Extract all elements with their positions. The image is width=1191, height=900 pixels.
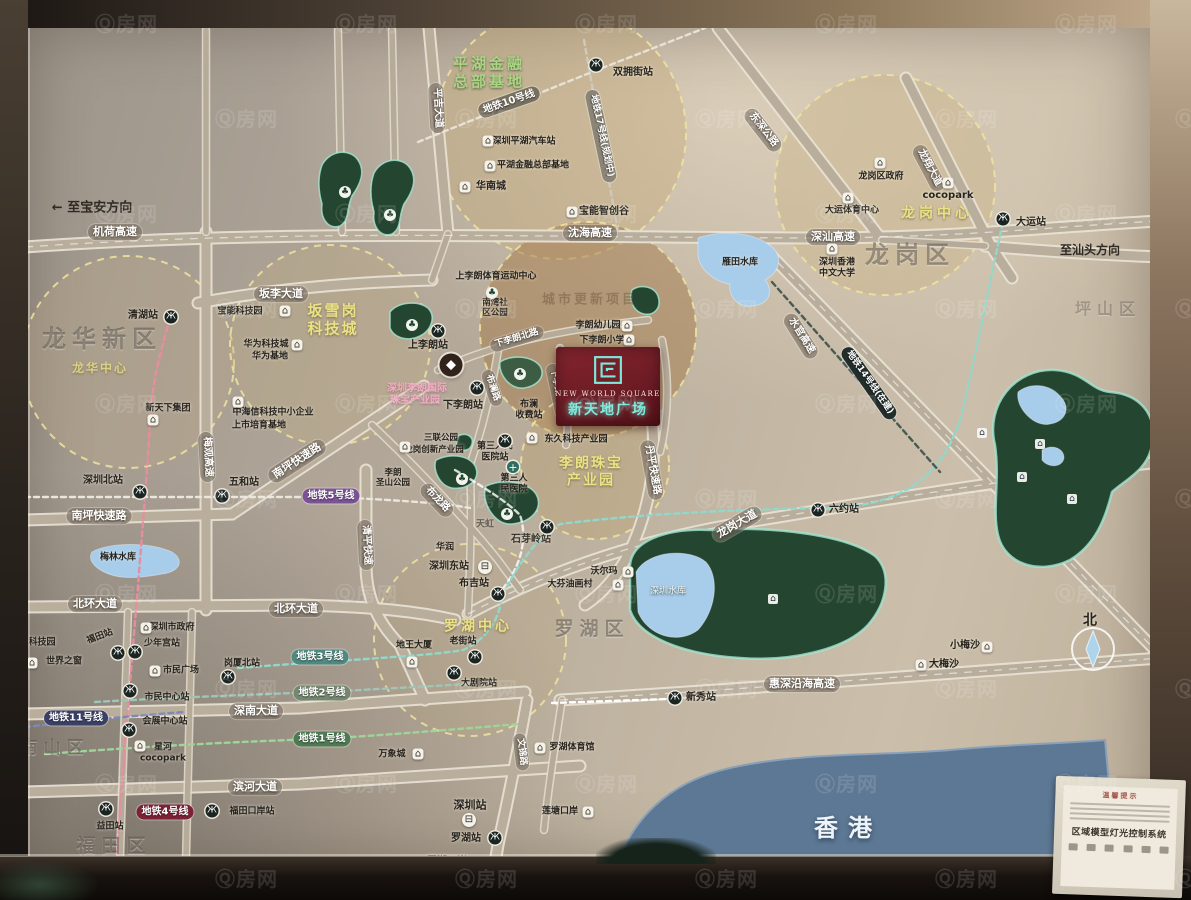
zone-label-longgang-center: 龙岗中心: [901, 206, 973, 223]
district-label-pingshan: 坪山区: [1075, 301, 1141, 320]
metro-station-icon: Ж: [165, 311, 178, 324]
poi-icon: ⌂: [1035, 439, 1045, 449]
poi-label: 岗厦北站: [224, 659, 260, 670]
poi-label: 深圳平湖汽车站: [492, 137, 555, 148]
district-label-nanshan: 南山区: [21, 738, 90, 758]
panel-button[interactable]: [1105, 845, 1114, 852]
park-icon: ♣: [406, 319, 418, 331]
poi-icon: ⌂: [233, 397, 244, 408]
road-label: 深南大道: [229, 703, 283, 719]
district-label-futian: 福田区: [76, 835, 151, 857]
road-label: 梅观高速: [198, 432, 215, 483]
poi-label: 第三人 民医院: [500, 473, 527, 494]
metro-station-icon: Ж: [489, 832, 502, 845]
panel-button[interactable]: [1141, 846, 1150, 853]
metro-station-icon: Ж: [541, 521, 554, 534]
poi-label: 大运站: [1016, 217, 1046, 229]
road-label: 惠深沿海高速: [764, 676, 840, 692]
zone-label-luohu-center: 罗湖中心: [444, 619, 512, 636]
poi-label: 华南城: [476, 181, 506, 193]
railway-station-icon: ⊟: [478, 560, 492, 574]
metro-line-badge: 地铁3号线: [292, 650, 349, 665]
light-control-panel: 温馨提示 区域模型灯光控制系统: [1052, 776, 1186, 898]
poi-icon: ⌂: [843, 193, 854, 204]
compass-north-label: 北: [1083, 613, 1097, 630]
poi-icon: ⌂: [483, 136, 494, 147]
panel-button[interactable]: [1159, 846, 1168, 853]
road-label: 布澜路: [480, 368, 504, 407]
poi-label: 平湖金融总部基地: [497, 161, 569, 172]
direction-baoan: ← 至宝安方向: [52, 200, 132, 215]
zone-label-lilang-jewelry: 李朗珠宝 产业园: [559, 455, 623, 488]
poi-label: 星河 cocopark: [140, 742, 186, 763]
poi-icon: ⌂: [280, 306, 291, 317]
poi-icon: ⌂: [413, 749, 424, 760]
metro-station-icon: Ж: [206, 805, 219, 818]
region-label-hongkong: 香港: [814, 814, 882, 842]
poi-icon: ⌂: [141, 623, 152, 634]
poi-label: 世界之窗: [46, 657, 82, 668]
district-label-longgang: 龙岗区: [865, 241, 955, 269]
poi-label: 龙岗区政府: [858, 172, 903, 183]
panel-button-row: [1067, 843, 1171, 854]
poi-icon: ⌂: [460, 182, 471, 193]
poi-label: 福田口岸站: [229, 807, 274, 818]
poi-icon: ⌂: [485, 161, 496, 172]
poi-icon: ⌂: [1067, 494, 1077, 504]
zone-label: 深圳李朗国际: [387, 383, 447, 395]
poi-icon: ⌂: [982, 642, 993, 653]
poi-icon: ⌂: [977, 428, 987, 438]
poi-label: 三联公园: [424, 433, 458, 443]
poi-icon: ⌂: [583, 807, 594, 818]
poi-icon: ⌂: [916, 660, 927, 671]
road-label: 南坪快速路: [265, 437, 328, 486]
poi-label: 市民广场: [163, 666, 199, 677]
poi-icon: ⌂: [535, 743, 546, 754]
road-label: 下李朗北路: [489, 325, 545, 354]
metro-station-icon: Ж: [997, 213, 1010, 226]
panel-system-title: 区域模型灯光控制系统: [1067, 824, 1171, 841]
park-icon: ♣: [514, 368, 526, 380]
poi-label: 布吉站: [459, 578, 489, 590]
poi-label: 李朗 圣山公园: [376, 468, 410, 488]
poi-icon: ⌂: [527, 433, 538, 444]
poi-label: 科技园: [28, 638, 55, 649]
poi-label: 大剧院站: [461, 679, 497, 690]
poi-label: 小梅沙: [950, 640, 980, 652]
poi-label: 少年宫站: [144, 639, 180, 650]
poi-label: 双拥街站: [613, 67, 653, 79]
jewelry-diamond-icon: ◆: [440, 354, 463, 377]
poi-icon: ⌂: [292, 340, 303, 351]
poi-label: 南湾社 区公园: [482, 298, 508, 318]
poi-icon: ⌂: [624, 335, 635, 346]
poi-label: 老街站: [449, 637, 476, 648]
map-label-layer: 平湖金融 总部基地坂雪岗 科技城龙岗中心龙华中心李朗珠宝 产业园罗湖中心城市更新…: [0, 0, 1191, 900]
poi-label: 新秀站: [686, 692, 716, 704]
zone-label: 珠宝产业园: [390, 395, 440, 407]
poi-icon: ⌂: [473, 857, 484, 868]
poi-label: 六约站: [829, 504, 859, 516]
road-label: 龙岗大道: [710, 504, 765, 545]
poi-label: 新天下集团: [145, 404, 190, 415]
poi-icon: ⌂: [13, 638, 24, 649]
poi-label: 华为基地: [252, 352, 288, 363]
poi-label: 中海信科技中小企业: [232, 408, 313, 419]
poi-label: 上市培育基地: [232, 421, 286, 432]
poi-label: 华润: [436, 543, 454, 554]
poi-label: 龙岗创新产业园: [404, 445, 464, 455]
poi-icon: ⌂: [875, 158, 886, 169]
road-label: 平吉大道: [428, 83, 445, 134]
poi-icon: ⌂: [567, 207, 578, 218]
poi-label: 下李朗小学: [579, 336, 624, 347]
metro-line-badge: 地铁4号线: [137, 805, 194, 820]
poi-label: 梅林水库: [100, 553, 136, 564]
zone-label-urban-renewal: 城市更新项目: [542, 292, 638, 307]
metro-line-badge: 地铁10号线: [476, 85, 541, 120]
metro-station-icon: Ж: [222, 671, 235, 684]
road-label: 水官高速: [782, 311, 821, 361]
metro-station-icon: Ж: [112, 647, 125, 660]
road-label: 东深公路: [742, 106, 784, 154]
metro-station-icon: Ж: [100, 803, 113, 816]
poi-label: 天虹: [476, 520, 494, 531]
metro-line-badge: 地铁17号线(规划中): [585, 89, 618, 184]
park-icon: ♣: [456, 473, 468, 485]
panel-button[interactable]: [1087, 844, 1096, 851]
zone-label-pinghu-finance: 平湖金融 总部基地: [453, 55, 525, 90]
poi-label: 深圳东站: [429, 561, 469, 573]
panel-title: 温馨提示: [1068, 789, 1172, 803]
metro-line-badge: 地铁2号线: [294, 686, 351, 701]
poi-label: 深圳站: [454, 800, 487, 813]
district-label-longhua: 龙华新区: [42, 325, 162, 353]
metro-station-icon: Ж: [134, 486, 147, 499]
map-photo: 平湖金融 总部基地坂雪岗 科技城龙岗中心龙华中心李朗珠宝 产业园罗湖中心城市更新…: [0, 0, 1191, 900]
road-label: 南坪快速路: [67, 508, 132, 524]
district-label-luohu: 罗湖区: [554, 618, 629, 640]
road-label: 布龙路: [418, 481, 456, 520]
poi-icon: ⌂: [768, 594, 778, 604]
poi-label: 雁田水库: [722, 258, 758, 269]
road-label: 北环大道: [269, 601, 323, 617]
road-label: 北环大道: [68, 596, 122, 612]
poi-label: 罗湖站: [451, 833, 481, 845]
poi-icon: ⌂: [27, 658, 38, 669]
poi-icon: ⌂: [623, 567, 634, 578]
metro-station-icon: Ж: [123, 724, 136, 737]
metro-station-icon: Ж: [590, 59, 603, 72]
panel-text-line: [1070, 817, 1170, 822]
poi-label: 大梅沙: [929, 659, 959, 671]
metro-station-icon: Ж: [216, 490, 229, 503]
poi-icon: ⌂: [1017, 472, 1027, 482]
zone-label-longhua-center: 龙华中心: [72, 361, 128, 375]
poi-icon: ⌂: [622, 321, 633, 332]
poi-label: 大运体育中心: [825, 206, 879, 217]
metro-station-icon: Ж: [124, 685, 137, 698]
poi-label: 市民中心站: [144, 693, 189, 704]
metro-line-badge: 地铁5号线: [303, 489, 360, 504]
poi-label: 第三人民 医院站: [477, 441, 513, 462]
road-label: 文锦路: [512, 733, 530, 771]
poi-label: 沃尔玛: [590, 567, 617, 578]
park-icon: ♣: [486, 287, 498, 299]
direction-shantou: 至汕头方向: [1060, 243, 1120, 257]
poi-label: 东久科技产业园: [544, 435, 607, 446]
poi-label: 石芽岭站: [511, 534, 551, 546]
road-label: 坂李大道: [254, 286, 308, 302]
road-label: 龙翔大道: [911, 143, 947, 194]
project-newworld-square: NEW WORLD SQUARE 新天地广场: [556, 347, 660, 426]
poi-label: 深圳水库: [650, 587, 686, 598]
metro-station-icon: Ж: [129, 646, 142, 659]
poi-label: 华为科技城: [243, 340, 288, 351]
poi-label: 罗湖口岸: [427, 856, 467, 868]
metro-line-badge: 地铁11号线: [44, 711, 108, 726]
poi-label: 深圳香港 中文大学: [819, 257, 855, 278]
poi-label: 罗湖体育馆: [549, 743, 594, 754]
metro-station-icon: Ж: [469, 651, 482, 664]
newworld-c-logo-icon: [593, 355, 623, 389]
park-icon: ♣: [501, 508, 513, 520]
panel-sheet: 温馨提示 区域模型灯光控制系统: [1060, 785, 1177, 890]
road-label: 丹平快速路: [640, 439, 665, 501]
poi-label: 五和站: [229, 477, 259, 489]
poi-label: 布澜 收费站: [515, 399, 542, 420]
poi-icon: ⌂: [400, 442, 411, 453]
project-name-cn: 新天地广场: [568, 399, 648, 419]
poi-label: 深圳市政府: [149, 623, 194, 634]
panel-button[interactable]: [1069, 843, 1078, 850]
metro-line-badge: 地铁1号线: [294, 732, 351, 747]
hospital-icon: +: [507, 461, 519, 473]
poi-icon: ⌂: [407, 657, 418, 668]
metro-station-icon: Ж: [432, 325, 445, 338]
park-icon: ♣: [339, 186, 351, 198]
metro-station-icon: Ж: [492, 588, 505, 601]
poi-label: 上李朗体育运动中心: [455, 272, 536, 283]
poi-label: 万象城: [378, 750, 405, 761]
road-label: 深汕高速: [806, 229, 860, 245]
poi-label: 莲塘口岸: [542, 807, 578, 818]
railway-station-icon: ⊟: [462, 813, 476, 827]
road-label: 机荷高速: [88, 224, 142, 240]
poi-label: 上李朗站: [408, 340, 448, 352]
metro-station-icon: Ж: [471, 382, 484, 395]
poi-icon: ⌂: [135, 741, 146, 752]
road-label: 清平快速: [357, 520, 374, 571]
park-icon: ♣: [384, 209, 396, 221]
project-name-en: NEW WORLD SQUARE: [555, 390, 660, 398]
metro-station-icon: Ж: [812, 504, 825, 517]
metro-station-icon: Ж: [499, 435, 512, 448]
poi-label: 宝能科技园: [217, 307, 262, 318]
poi-icon: ⌂: [148, 415, 159, 426]
poi-label: 会展中心站: [142, 717, 187, 728]
poi-icon: ⌂: [827, 244, 838, 255]
metro-station-icon: Ж: [448, 667, 461, 680]
poi-label: 大芬油画村: [547, 580, 592, 591]
panel-button[interactable]: [1123, 845, 1132, 852]
poi-icon: ⌂: [613, 580, 624, 591]
poi-label: 地王大厦: [396, 641, 432, 652]
poi-label: 清湖站: [128, 310, 158, 322]
poi-icon: ⌂: [150, 666, 161, 677]
poi-label: 福田站: [85, 627, 114, 646]
road-label: 滨河大道: [228, 779, 282, 795]
poi-label: 下李朗站: [443, 400, 483, 412]
poi-label: 宝能智创谷: [579, 206, 629, 218]
poi-label: 深圳北站: [83, 475, 123, 487]
zone-label-banxuegang: 坂雪岗 科技城: [307, 302, 358, 337]
poi-icon: ⌂: [943, 178, 954, 189]
poi-label: 李朗幼儿园: [575, 321, 620, 332]
road-label: 沈海高速: [563, 225, 617, 241]
metro-station-icon: Ж: [669, 692, 682, 705]
poi-label: cocopark: [922, 190, 973, 202]
metro-line-badge: 地铁14号线(在建): [839, 344, 899, 421]
poi-label: 益田站: [96, 822, 123, 833]
